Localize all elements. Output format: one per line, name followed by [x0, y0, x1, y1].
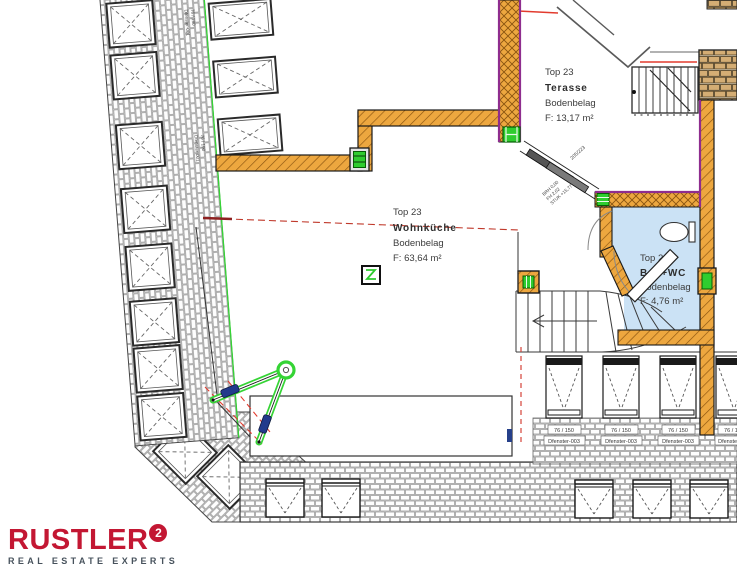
window-symbol	[218, 115, 283, 156]
svg-text:Dfenster-003: Dfenster-003	[662, 439, 694, 445]
wall-window-symbol	[698, 268, 716, 294]
window-symbol	[125, 243, 174, 290]
svg-text:Dfenster-003: Dfenster-003	[718, 439, 737, 445]
window-symbol	[266, 479, 304, 517]
outlet-icon	[362, 266, 380, 284]
window-size-label: 76 / 150	[554, 428, 574, 434]
terrace-sliding-door: 205/223 BRH 0,00 FH 2,02 STUK +15,77	[520, 141, 599, 206]
room-area: F: 4,76 m²	[640, 296, 683, 307]
window-symbol	[121, 186, 170, 233]
room-name: Terasse	[545, 83, 588, 94]
window-symbol	[660, 356, 696, 418]
straight-staircase	[632, 67, 698, 115]
window-symbol	[116, 122, 165, 169]
floor-plan-drawing: 76 / 150 Dfenster-003 76 / 150 Dfenster-…	[0, 0, 737, 576]
window-symbol	[575, 480, 613, 518]
svg-text:Dfenster-003: Dfenster-003	[605, 439, 637, 445]
svg-text:76 / 150: 76 / 150	[668, 428, 688, 434]
room-area: F: 63,64 m²	[393, 253, 442, 264]
west-wall-band: 76 / 190 Dfenster-001 76 / 190 Dfenster-…	[99, 0, 305, 446]
room-unit: Top 23	[393, 207, 422, 218]
wall-sensor-icon	[597, 194, 609, 206]
wall-sensor-icon	[350, 148, 369, 171]
door-dimension: 205/223	[569, 145, 587, 162]
red-guide-line	[518, 11, 558, 13]
room-name: Wohnküche	[393, 223, 457, 234]
svg-text:76 / 150: 76 / 150	[611, 428, 631, 434]
window-symbol	[633, 480, 671, 518]
window-symbol	[213, 57, 278, 98]
room-flooring: Bodenbelag	[393, 238, 444, 249]
window-symbol	[106, 0, 155, 47]
compass-hinge	[278, 362, 294, 378]
logo-superscript-badge: 2	[149, 524, 167, 542]
window-symbol	[110, 52, 159, 99]
window-symbol	[137, 393, 186, 440]
wall-sensor-icon	[503, 127, 520, 142]
brick-pier	[699, 0, 737, 100]
red-dashed-guide	[203, 218, 519, 230]
room-unit: Top 23	[545, 67, 574, 78]
window-code-label: Dfenster-003	[548, 439, 580, 445]
window-symbol	[716, 356, 737, 418]
rustler-logo: RUSTLER2 REAL ESTATE EXPERTS	[8, 526, 178, 566]
window-symbol	[690, 480, 728, 518]
east-wall	[698, 100, 716, 435]
red-guide-segment	[203, 218, 232, 219]
room-flooring: Bodenbelag	[545, 98, 596, 109]
logo-brand-text: RUSTLER	[8, 524, 148, 556]
window-symbol	[130, 298, 179, 345]
window-symbol	[603, 356, 639, 418]
window-symbol	[322, 479, 360, 517]
stair-window-symbol	[518, 271, 539, 293]
toilet	[660, 222, 695, 242]
window-symbol	[209, 0, 274, 40]
logo-tagline-text: REAL ESTATE EXPERTS	[8, 557, 178, 566]
svg-text:205/223: 205/223	[569, 145, 587, 162]
window-symbol	[546, 356, 582, 418]
room-area: F: 13,17 m²	[545, 113, 594, 124]
blue-marker	[507, 429, 512, 442]
svg-text:76 / 150: 76 / 150	[724, 428, 737, 434]
bottom-wall-band	[240, 462, 737, 522]
room-label-wohnkueche: Top 23 Wohnküche Bodenbelag F: 63,64 m²	[393, 207, 457, 264]
floor-plan-page: 76 / 150 Dfenster-003 76 / 150 Dfenster-…	[0, 0, 737, 576]
counter-outline	[250, 396, 512, 456]
window-symbol	[133, 345, 182, 392]
room-label-terasse: Top 23 Terasse Bodenbelag F: 13,17 m²	[545, 67, 596, 124]
